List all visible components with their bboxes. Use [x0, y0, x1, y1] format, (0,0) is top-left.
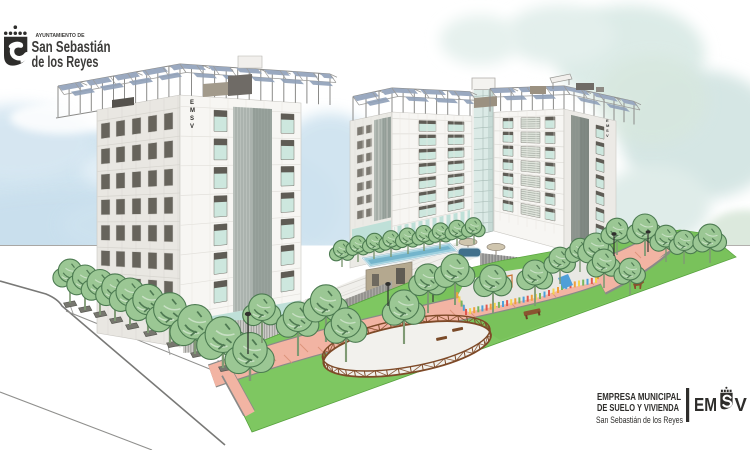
svg-text:EMPRESA MUNICIPAL: EMPRESA MUNICIPAL: [597, 392, 681, 403]
svg-text:V: V: [606, 133, 609, 138]
svg-text:DE SUELO Y VIVIENDA: DE SUELO Y VIVIENDA: [597, 403, 679, 414]
svg-text:V: V: [735, 394, 748, 415]
svg-text:M: M: [190, 108, 195, 114]
svg-text:San Sebastián de los Reyes: San Sebastián de los Reyes: [596, 415, 683, 425]
svg-text:E: E: [190, 100, 194, 106]
svg-text:V: V: [190, 124, 194, 130]
svg-text:de los Reyes: de los Reyes: [32, 54, 99, 71]
svg-text:EM: EM: [694, 394, 717, 415]
svg-text:S: S: [190, 116, 194, 122]
